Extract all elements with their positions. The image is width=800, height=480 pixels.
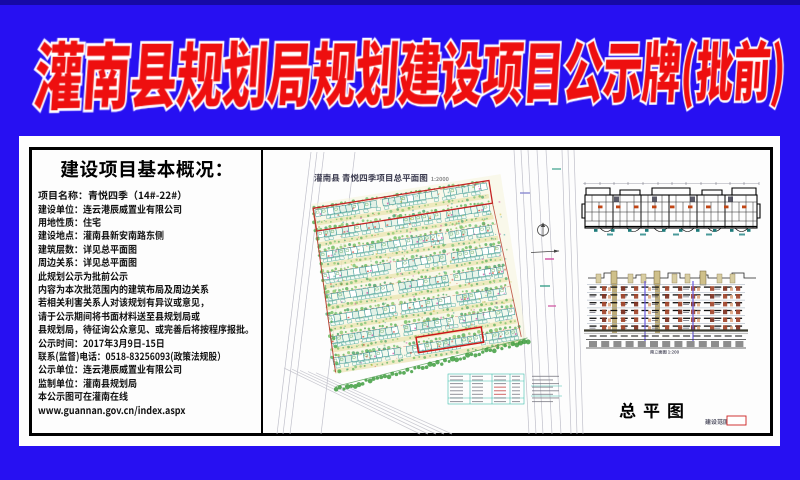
- svg-text:灌南县 青悦四季项目总平面图1:2000: 灌南县 青悦四季项目总平面图1:2000: [314, 172, 449, 184]
- svg-text:建设范围: 建设范围: [705, 417, 729, 426]
- svg-text:南立面图 1:200: 南立面图 1:200: [650, 349, 680, 356]
- svg-text:总平图: 总平图: [619, 397, 691, 422]
